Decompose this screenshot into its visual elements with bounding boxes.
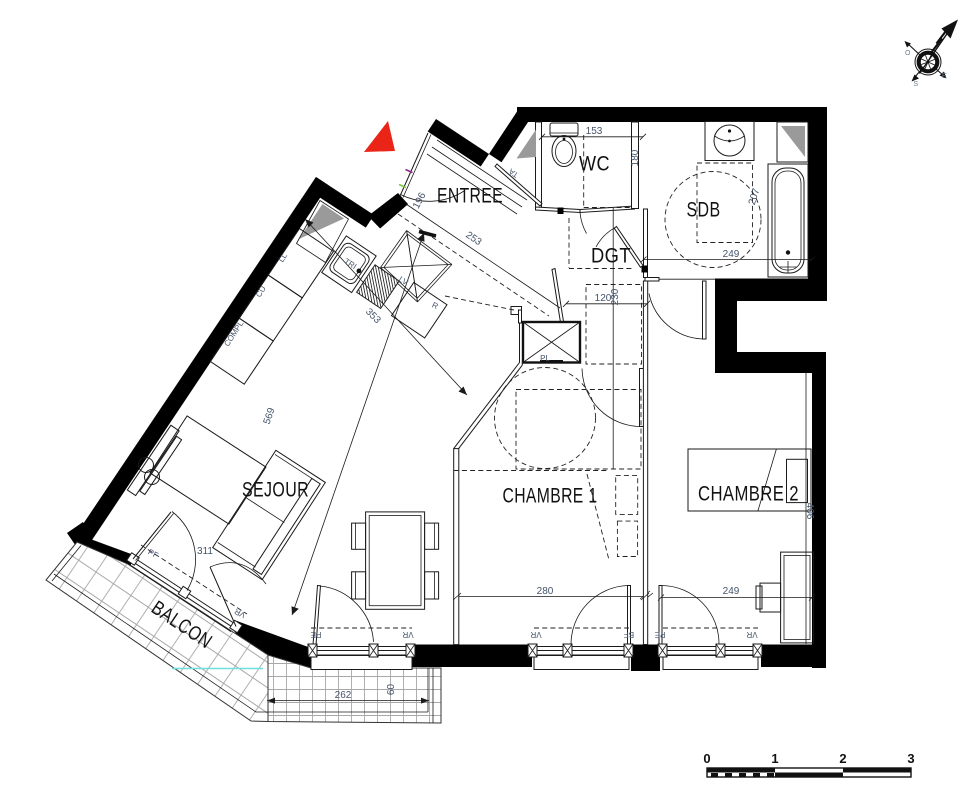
svg-text:S: S [914,81,919,88]
svg-text:1: 1 [771,751,778,766]
svg-text:SDB: SDB [687,199,721,222]
svg-text:BF: BF [624,630,634,639]
svg-text:PE: PE [311,630,322,639]
svg-text:2: 2 [839,751,846,766]
svg-text:0: 0 [703,751,710,766]
svg-text:VR: VR [402,630,413,639]
svg-text:311: 311 [197,546,213,557]
svg-text:180: 180 [630,149,641,166]
svg-text:280: 280 [537,586,554,597]
svg-text:PL: PL [540,354,550,363]
svg-text:406: 406 [804,503,815,520]
svg-text:153: 153 [586,126,603,137]
svg-text:O: O [905,50,911,57]
svg-text:SEJOUR: SEJOUR [242,479,309,502]
svg-text:3: 3 [907,751,914,766]
svg-text:ENTREE: ENTREE [437,185,503,208]
svg-text:262: 262 [335,690,352,701]
svg-text:CHAMBRE 1: CHAMBRE 1 [503,485,598,508]
svg-text:60: 60 [386,684,397,696]
svg-text:VR: VR [746,630,757,639]
svg-text:E: E [942,73,947,80]
svg-text:249: 249 [723,586,740,597]
svg-text:230: 230 [610,288,621,305]
svg-text:PE: PE [655,630,666,639]
svg-text:CHAMBRE 2: CHAMBRE 2 [698,483,799,506]
svg-text:DGT: DGT [591,245,631,268]
svg-text:VR: VR [530,630,541,639]
svg-text:249: 249 [723,249,740,260]
svg-text:WC: WC [579,153,610,176]
